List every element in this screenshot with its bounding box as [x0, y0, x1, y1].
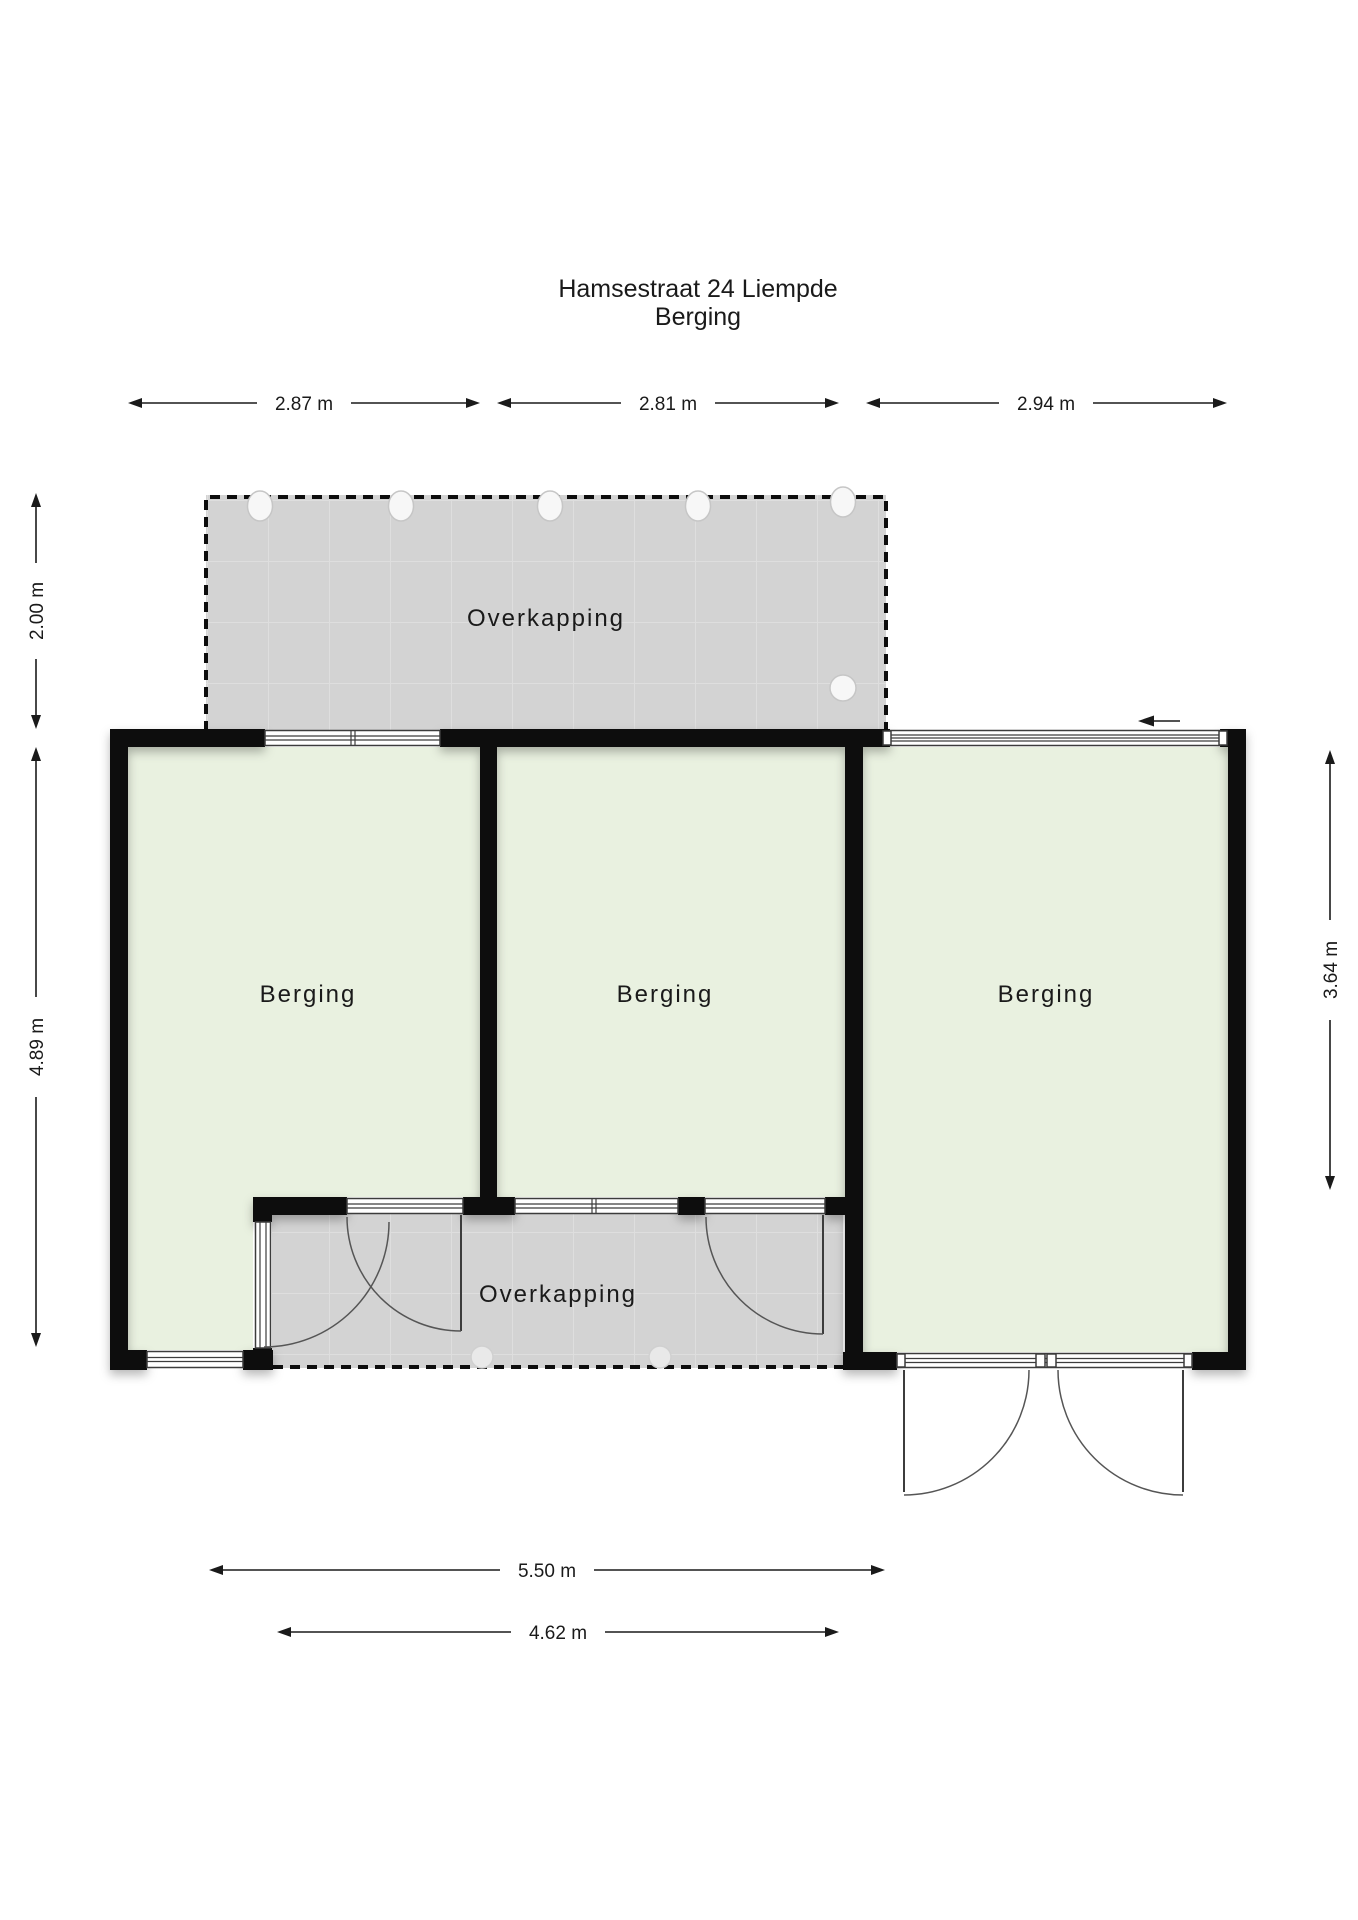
dimension-label: 3.64 m — [1321, 941, 1342, 999]
post-icon — [471, 1346, 493, 1368]
dimension-top-middle: 2.81 m — [497, 394, 839, 415]
dimension-label: 2.00 m — [27, 582, 48, 640]
post-icon — [649, 1346, 671, 1368]
post-icon — [830, 675, 856, 701]
dimension-bottom-inner: 4.62 m — [277, 1623, 839, 1644]
room-label-berging-right: Berging — [998, 981, 1095, 1008]
room-label-berging-left: Berging — [260, 981, 357, 1008]
room-berging-middle — [497, 747, 845, 1197]
window-symbol — [515, 1199, 678, 1214]
double-door-swing — [897, 1354, 1192, 1496]
dimension-left-upper: 2.00 m — [27, 493, 48, 729]
dimension-top-right: 2.94 m — [866, 394, 1227, 415]
dimension-right: 3.64 m — [1321, 750, 1342, 1190]
post-icon — [538, 491, 563, 521]
floor-plan-page: 2.87 m 2.81 m 2.94 m 2.00 m 4.89 m 3.64 … — [0, 0, 1358, 1920]
post-icon — [831, 487, 856, 517]
plan-title: Hamsestraat 24 Liempde — [558, 275, 837, 303]
post-icon — [248, 491, 273, 521]
window-symbol — [147, 1352, 243, 1368]
window-symbol — [883, 731, 1227, 746]
dimension-label: 5.50 m — [518, 1561, 576, 1582]
dimension-label: 2.87 m — [275, 394, 333, 415]
plan-subtitle: Berging — [655, 303, 741, 331]
dimension-left-lower: 4.89 m — [27, 747, 48, 1347]
room-berging-right — [863, 747, 1228, 1352]
window-symbol — [265, 731, 440, 746]
dimension-bottom-outer: 5.50 m — [209, 1561, 885, 1582]
room-berging-left-annex — [128, 1197, 253, 1350]
dimension-label: 4.62 m — [529, 1623, 587, 1644]
dimension-label: 4.89 m — [27, 1018, 48, 1076]
dimension-top-left: 2.87 m — [128, 394, 480, 415]
floor-plan: 2.87 m 2.81 m 2.94 m 2.00 m 4.89 m 3.64 … — [0, 0, 1358, 1920]
room-label-berging-middle: Berging — [617, 981, 714, 1008]
post-icon — [686, 491, 711, 521]
post-icon — [389, 491, 414, 521]
room-label-canopy-bottom: Overkapping — [479, 1281, 637, 1308]
entry-arrow-icon — [1138, 716, 1180, 727]
room-label-canopy-top: Overkapping — [467, 605, 625, 632]
dimension-label: 2.81 m — [639, 394, 697, 415]
room-berging-left — [128, 747, 480, 1197]
dimension-label: 2.94 m — [1017, 394, 1075, 415]
